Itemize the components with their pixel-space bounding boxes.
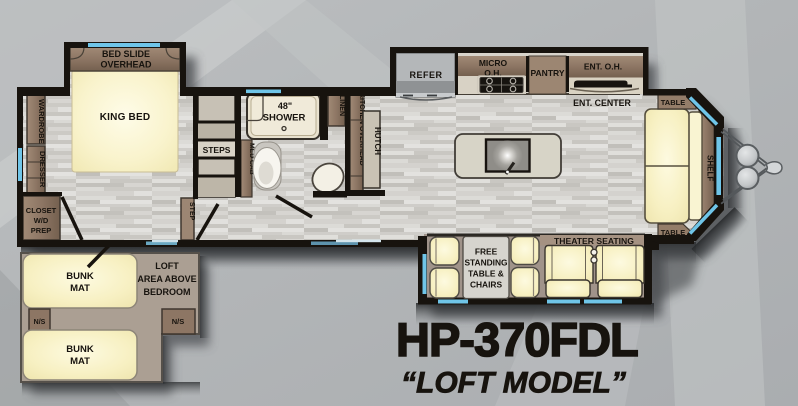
svg-text:TABLE &: TABLE & — [468, 269, 504, 279]
svg-text:TABLE: TABLE — [661, 98, 685, 107]
svg-text:MAT: MAT — [70, 356, 90, 367]
svg-text:ENT. CENTER: ENT. CENTER — [573, 98, 631, 108]
svg-text:OVERHEAD: OVERHEAD — [100, 60, 152, 70]
svg-text:STANDING: STANDING — [464, 258, 507, 268]
svg-text:CLOSET: CLOSET — [26, 206, 57, 215]
svg-text:FREE: FREE — [475, 247, 498, 257]
svg-text:THEATER SEATING: THEATER SEATING — [554, 236, 634, 246]
svg-text:DRESSER: DRESSER — [38, 151, 47, 188]
svg-text:REFER: REFER — [409, 70, 442, 80]
svg-text:BUNK: BUNK — [66, 344, 94, 355]
svg-text:HUTCH: HUTCH — [373, 127, 382, 155]
svg-text:STEP: STEP — [188, 202, 195, 221]
svg-text:LINEN: LINEN — [338, 95, 345, 116]
svg-text:LOFT: LOFT — [155, 261, 179, 271]
svg-text:ENT. O.H.: ENT. O.H. — [584, 62, 622, 72]
svg-text:48": 48" — [278, 101, 292, 111]
svg-text:WARDROBE: WARDROBE — [37, 99, 46, 144]
svg-text:KING BED: KING BED — [100, 112, 151, 123]
svg-text:CHAIRS: CHAIRS — [470, 280, 503, 290]
svg-text:SHELF: SHELF — [706, 155, 715, 181]
svg-text:BED SLIDE: BED SLIDE — [102, 49, 150, 59]
svg-text:N/S: N/S — [172, 317, 185, 326]
svg-text:W/D: W/D — [34, 216, 49, 225]
svg-text:AREA ABOVE: AREA ABOVE — [137, 274, 196, 284]
svg-text:BUNK: BUNK — [66, 271, 94, 282]
svg-text:PANTRY: PANTRY — [531, 68, 565, 78]
svg-text:“LOFT MODEL”: “LOFT MODEL” — [401, 367, 626, 400]
svg-text:STEPS: STEPS — [203, 145, 231, 155]
svg-text:MAT: MAT — [70, 283, 90, 294]
svg-text:SHOWER: SHOWER — [263, 113, 306, 124]
svg-text:MICRO: MICRO — [479, 58, 508, 68]
svg-text:BEDROOM: BEDROOM — [144, 287, 191, 297]
svg-text:N/S: N/S — [34, 319, 46, 326]
svg-text:PREP: PREP — [31, 226, 51, 235]
svg-text:HP-370FDL: HP-370FDL — [396, 313, 638, 366]
